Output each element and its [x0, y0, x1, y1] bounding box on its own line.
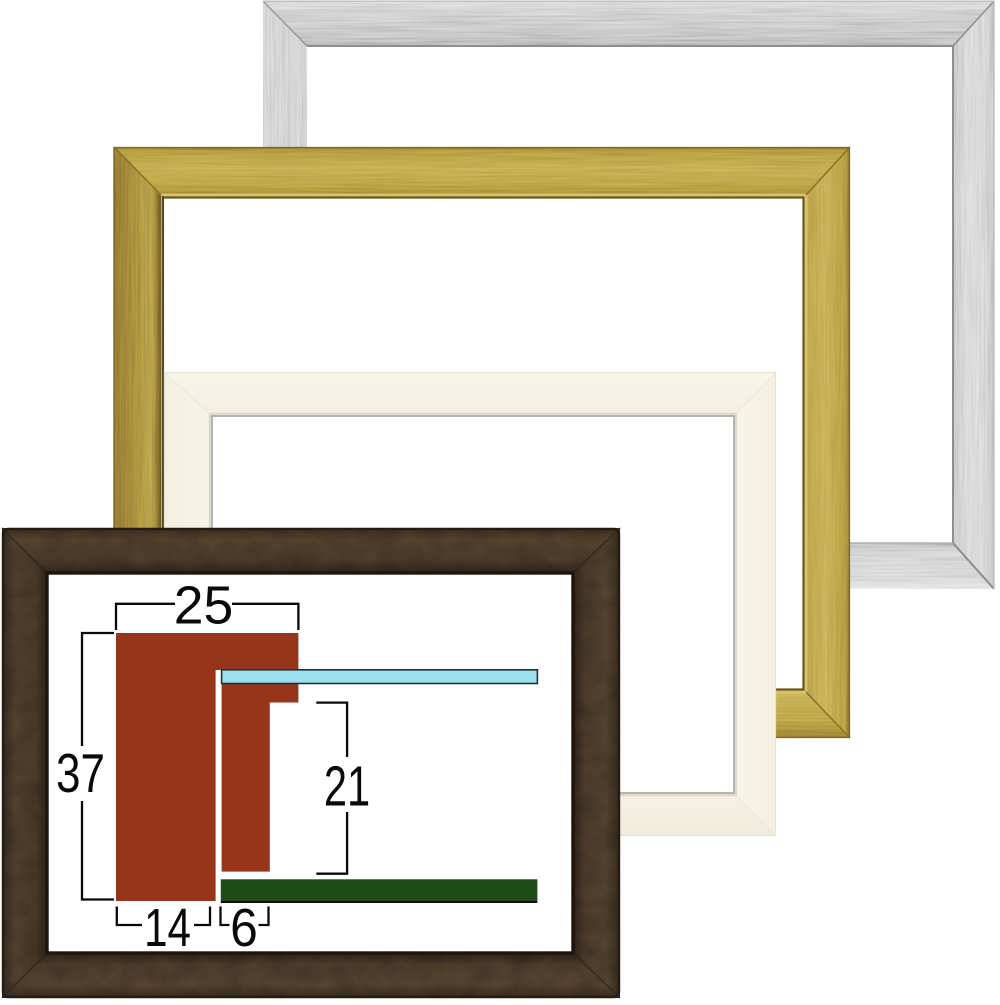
- svg-text:6: 6: [230, 897, 258, 957]
- svg-text:21: 21: [324, 754, 370, 818]
- svg-text:37: 37: [56, 742, 105, 804]
- svg-text:14: 14: [144, 898, 191, 958]
- svg-text:25: 25: [174, 577, 234, 636]
